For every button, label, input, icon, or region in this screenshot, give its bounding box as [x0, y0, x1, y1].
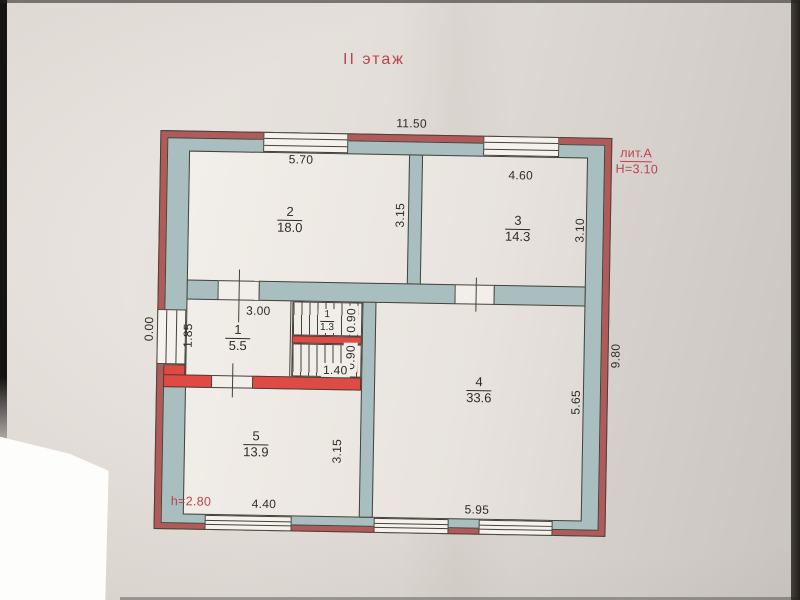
room-5-label: 5 13.9: [243, 429, 269, 460]
window-bottom-center: [373, 518, 448, 534]
dim-right-total: 9.80: [609, 344, 621, 369]
partition-room5-right: [252, 376, 361, 391]
photo-edge-left: [0, 0, 7, 460]
photo-corner-cutoff: [0, 430, 112, 600]
floor-title: II этаж: [343, 51, 405, 69]
wall-rooms-2-3-divider: [407, 154, 423, 284]
room-4-area: 33.6: [466, 391, 492, 406]
building-height-label: H=3.10: [616, 163, 659, 176]
wall-mid-center-segment: [258, 281, 455, 304]
window-top-right: [483, 136, 559, 157]
photo-edge-right: [791, 0, 800, 600]
liter-label: лит.А: [620, 147, 652, 162]
room-4-number: 4: [466, 375, 492, 391]
dim-room2-width: 5.70: [289, 153, 314, 165]
dim-top-total: 11.50: [396, 117, 427, 130]
room-1-number: 1: [225, 323, 251, 339]
window-top-left: [263, 132, 348, 153]
room-2-number: 2: [277, 205, 303, 221]
dim-left-zero: 0.00: [143, 316, 155, 341]
window-bottom-left: [204, 515, 291, 532]
room-1-label: 1 5.5: [225, 323, 251, 354]
window-bottom-right: [478, 520, 552, 536]
floor-plan: 2 18.0 3 14.3 1 5.5 4 33.6 5 13.9 1 1.3: [151, 126, 623, 544]
dim-room3-depth: 3.10: [574, 218, 586, 243]
dim-stair-upper-width: 0.90: [344, 306, 358, 335]
room-3-number: 3: [505, 214, 531, 230]
dim-room5-depth: 3.15: [331, 439, 343, 464]
ceiling-height-label: h=2.80: [171, 495, 212, 508]
stair-label: 1 1.3: [318, 309, 336, 333]
stair-number: 1: [320, 309, 334, 322]
wall-mid-left-segment: [187, 280, 219, 301]
dim-room4-width: 5.95: [464, 503, 489, 515]
dim-room3-width: 4.60: [508, 169, 533, 181]
document-photo: II этаж: [0, 0, 800, 600]
room-2-label: 2 18.0: [277, 205, 303, 236]
room-4-label: 4 33.6: [466, 375, 492, 406]
room-3-area: 14.3: [505, 230, 531, 245]
dim-room4-depth: 5.65: [570, 390, 582, 415]
dim-hall-depth: 1.85: [182, 323, 194, 348]
room-2-area: 18.0: [277, 221, 303, 236]
photo-edge-top: [0, 0, 800, 3]
dim-stair-length: 1.40: [321, 363, 350, 377]
wall-mid-right-segment: [493, 285, 585, 307]
dim-room5-width: 4.40: [252, 498, 277, 510]
partition-room5-left: [163, 374, 212, 388]
room-5-area: 13.9: [243, 445, 269, 460]
room-1-area: 5.5: [229, 339, 247, 354]
room-5-number: 5: [243, 429, 269, 445]
stair-area: 1.3: [320, 321, 334, 333]
dim-hall-width: 3.00: [246, 305, 271, 317]
photo-canvas: II этаж: [0, 0, 800, 600]
room-3-label: 3 14.3: [505, 214, 531, 245]
dim-room2-depth: 3.15: [394, 203, 406, 228]
